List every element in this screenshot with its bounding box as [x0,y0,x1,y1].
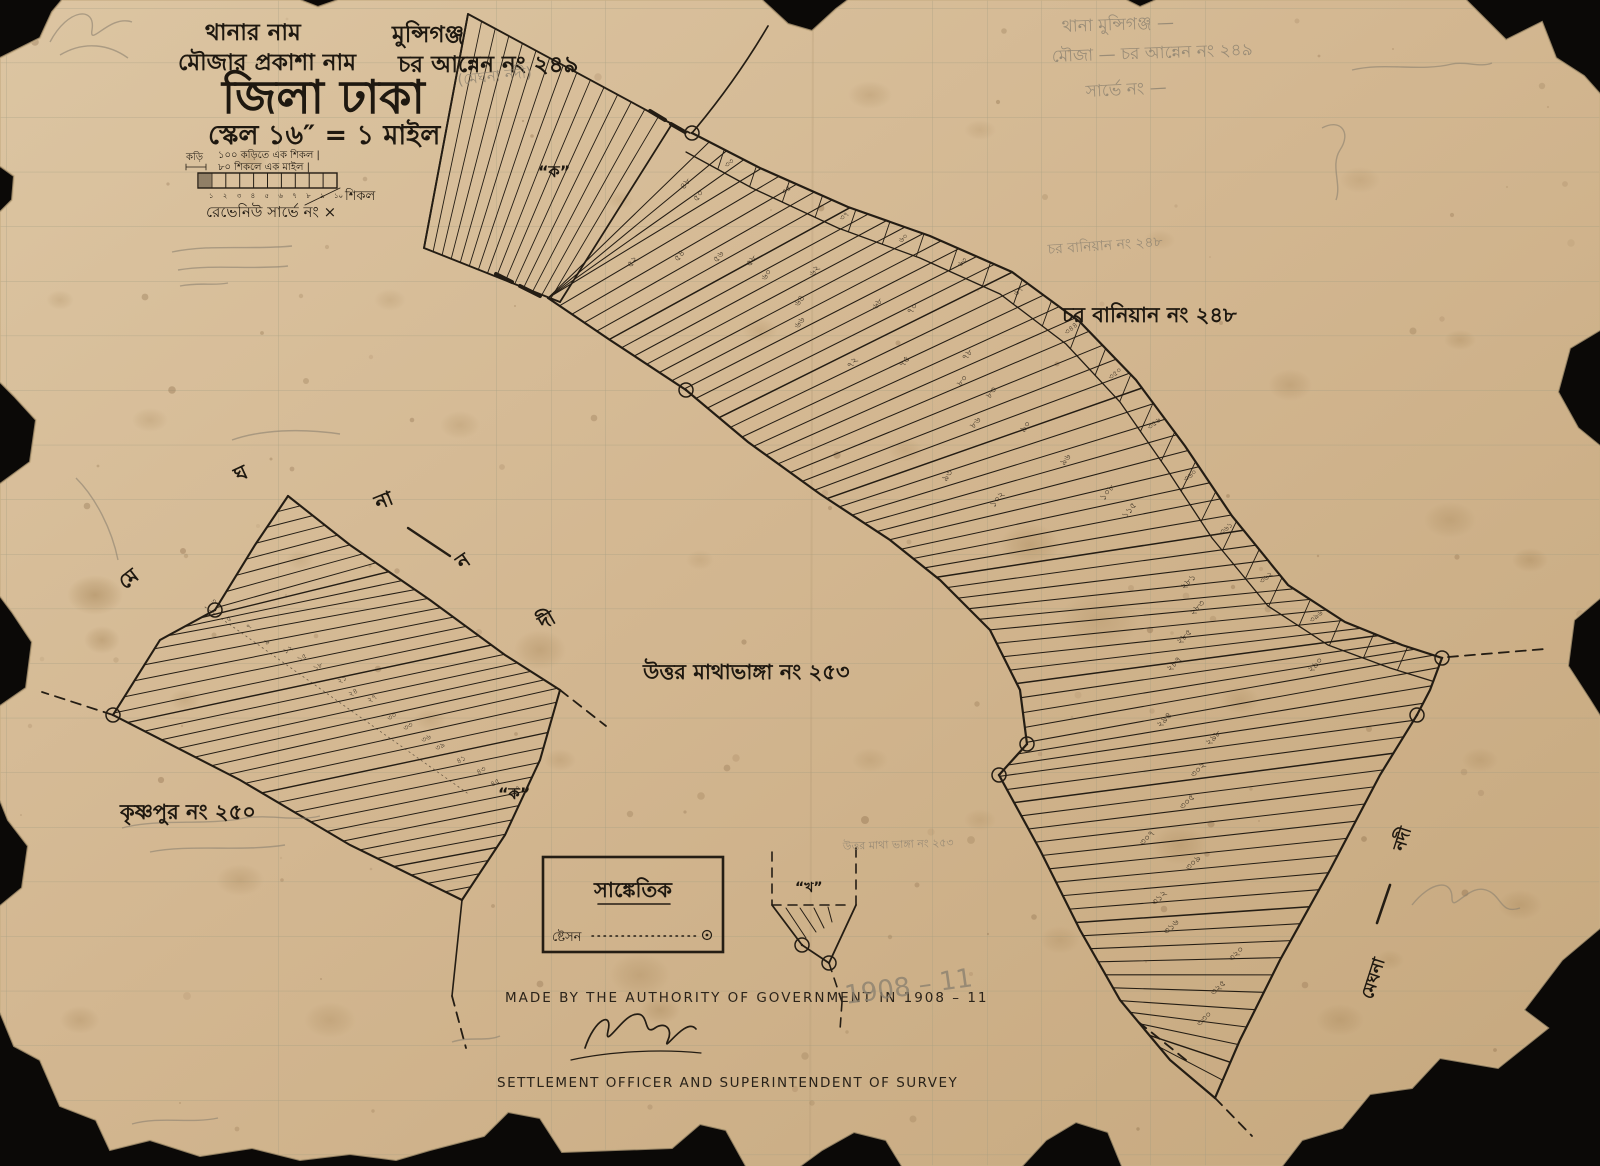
paper-speckle [861,816,869,824]
scalebar-tick: ৯ [320,192,325,200]
paper-stain [1424,502,1476,538]
paper-speckle [1136,1127,1139,1130]
paper-stain [964,809,996,831]
thana-value: মুন্সিগঞ্জ [391,20,464,49]
paper-stain [374,289,406,311]
paper-stain [440,411,480,439]
paper-speckle [1226,494,1230,498]
paper-stain [1316,1004,1364,1036]
paper-stain [1040,926,1080,954]
paper-speckle [1547,106,1549,108]
paper-speckle [770,209,772,211]
paper-speckle [1450,213,1454,217]
paper-speckle [1317,555,1319,557]
paper-speckle [20,814,22,816]
legend-station-dot [706,934,708,936]
paper-speckle [290,467,295,472]
scalebar-kori-label: কড়ি [185,151,204,163]
paper-speckle [212,633,217,638]
section-mark-kha: “খ” [795,880,823,896]
pencil-survey-note: সার্ভে নং — [1084,77,1167,102]
paper-speckle [828,506,832,510]
paper-speckle [910,1116,917,1123]
paper-speckle [491,904,495,908]
paper-stain [304,1002,356,1038]
paper-stain [848,81,892,109]
paper-speckle [1149,708,1154,713]
label-uttar-mathabhanga: উত্তর মাথাভাঙ্গা নং ২৫৩ [642,658,850,684]
paper-stain [742,318,778,342]
paper-speckle [907,540,912,545]
paper-speckle [142,294,149,301]
paper-stain [1444,330,1476,350]
paper-speckle [801,1052,808,1059]
paper-speckle [181,725,183,727]
paper-speckle [1042,194,1048,200]
paper-stain [84,626,120,654]
thana-label: থানার নাম [205,20,302,46]
paper-speckle [260,331,264,335]
paper-speckle [320,978,322,980]
paper-stain [686,550,714,570]
paper-stain [1340,167,1380,193]
paper-speckle [1478,790,1484,796]
paper-speckle [809,1100,814,1105]
paper-speckle [256,524,260,528]
paper-speckle [179,1102,181,1104]
paper-speckle [724,765,731,772]
paper-speckle [370,868,373,871]
paper-stain [60,1006,100,1034]
scalebar-tick: ১০ [334,192,343,200]
scalebar-tick: ৪ [251,192,256,200]
scalebar-line2: ৮০ শিকলে এক মাইল | [218,161,310,173]
paper-speckle [1183,593,1190,600]
paper-stain [286,550,314,570]
paper-speckle [741,639,746,644]
paper-speckle [1071,716,1074,719]
paper-speckle [183,992,191,1000]
paper-speckle [285,594,287,596]
paper-speckle [314,634,319,639]
paper-stain [1060,590,1140,650]
paper-speckle [270,458,273,461]
paper-speckle [113,657,118,662]
paper-speckle [522,120,524,122]
paper-speckle [235,1127,240,1132]
paper-speckle [499,464,505,470]
paper-speckle [1439,316,1444,321]
label-krishnapur: কৃষ্ণপুর নং ২৫০ [119,800,256,826]
paper-speckle [987,933,989,935]
paper-speckle [168,386,176,394]
paper-speckle [530,134,534,138]
pencil-thana-note: থানা মুন্সিগঞ্জ — [1061,12,1174,37]
paper-speckle [594,73,601,80]
legend-station-label: ষ্টেসন [552,929,582,945]
scalebar-tick: ৮ [306,192,311,200]
scalebar-tick: ২ [223,192,228,200]
paper-stain [1462,748,1498,772]
paper-speckle [1258,820,1260,822]
paper-speckle [84,503,91,510]
paper-stain [216,864,264,896]
scalebar-tick: ৩ [237,192,242,200]
paper-stain [514,630,566,670]
scale-statement: স্কেল ১৬″ = ১ মাইল [208,118,441,151]
paper-speckle [514,732,518,736]
paper-speckle [1038,752,1043,757]
paper-speckle [1392,48,1394,50]
paper-speckle [1259,567,1263,571]
paper-speckle [299,294,303,298]
paper-speckle [1493,1048,1497,1052]
paper-speckle [1562,181,1568,187]
paper-speckle [537,981,544,988]
paper-speckle [896,341,901,346]
paper-speckle [915,883,920,888]
paper-speckle [1539,83,1545,89]
paper-speckle [732,754,739,761]
paper-speckle [1075,692,1082,699]
paper-speckle [363,177,368,182]
paper-speckle [40,657,45,662]
paper-speckle [1295,19,1300,24]
paper-speckle [1145,961,1147,963]
paper-speckle [1031,914,1037,920]
scalebar-tick: ৫ [265,192,270,200]
revenue-survey-note: রেভেনিউ সার্ভে নং × [206,203,336,221]
paper-speckle [627,811,633,817]
paper-speckle [1249,787,1252,790]
paper-speckle [180,548,186,554]
paper-stain [1268,369,1312,401]
paper-stain [132,408,168,432]
paper-speckle [697,792,705,800]
paper-speckle [303,378,309,384]
scalebar-tick: ৬ [278,192,283,200]
map-canvas: থানার নাম মুন্সিগঞ্জ মৌজার প্রকাশা নাম চ… [0,0,1600,1166]
paper-speckle [97,465,100,468]
paper-speckle [1209,256,1211,258]
paper-speckle [683,810,686,813]
paper-stain [67,575,123,615]
paper-speckle [280,878,284,882]
paper-speckle [369,355,373,359]
paper-speckle [1318,55,1321,58]
scalebar-tick: ৭ [292,192,297,200]
label-char-baniyan: চর বানিয়ান নং ২৪৮ [1061,302,1237,327]
paper-speckle [1302,982,1309,989]
paper-speckle [280,857,282,859]
paper-speckle [974,701,979,706]
scalebar-tick: ১ [209,192,214,200]
paper-speckle [845,1030,848,1033]
paper-speckle [1174,204,1177,207]
paper-speckle [371,1109,374,1112]
paper-stain [852,748,888,772]
scalebar-unit-right: শিকল [344,188,376,204]
paper-stain [1498,890,1542,920]
paper-speckle [967,836,975,844]
paper-speckle [158,777,164,783]
paper-speckle [1170,631,1174,635]
paper-speckle [1361,836,1367,842]
paper-speckle [410,418,415,423]
paper-speckle [514,305,516,307]
paper-speckle [1001,28,1007,34]
section-mark-ka-top: “ক” [538,162,570,181]
officer-line: SETTLEMENT OFFICER AND SUPERINTENDENT OF… [497,1075,958,1091]
paper-speckle [1128,585,1134,591]
paper-speckle [996,100,1000,104]
paper-speckle [591,415,598,422]
paper-stain [1220,686,1260,714]
paper-speckle [394,568,399,573]
paper-speckle [927,828,934,835]
paper-speckle [184,554,188,558]
paper-speckle [28,724,32,728]
paper-speckle [325,245,329,249]
paper-stain [46,290,74,310]
paper-speckle [1231,585,1235,589]
paper-stain [964,120,996,140]
paper-speckle [647,1104,652,1109]
paper-speckle [166,182,169,185]
paper-stain [1512,548,1548,572]
legend-title: সাঙ্কেতিক [593,877,673,902]
survey-map-sheet: থানার নাম মুন্সিগঞ্জ মৌজার প্রকাশা নাম চ… [0,0,1600,1166]
paper-speckle [1461,769,1468,776]
paper-speckle [1567,239,1574,246]
paper-stain [544,749,576,771]
district-title: জিলা ঢাকা [220,69,426,124]
paper-speckle [1161,906,1168,913]
paper-speckle [888,935,892,939]
paper-speckle [1506,186,1508,188]
paper-speckle [1410,328,1417,335]
scalebar-line1: ১০০ কড়িতে এক শিকল | [218,149,320,161]
paper-speckle [1454,554,1459,559]
